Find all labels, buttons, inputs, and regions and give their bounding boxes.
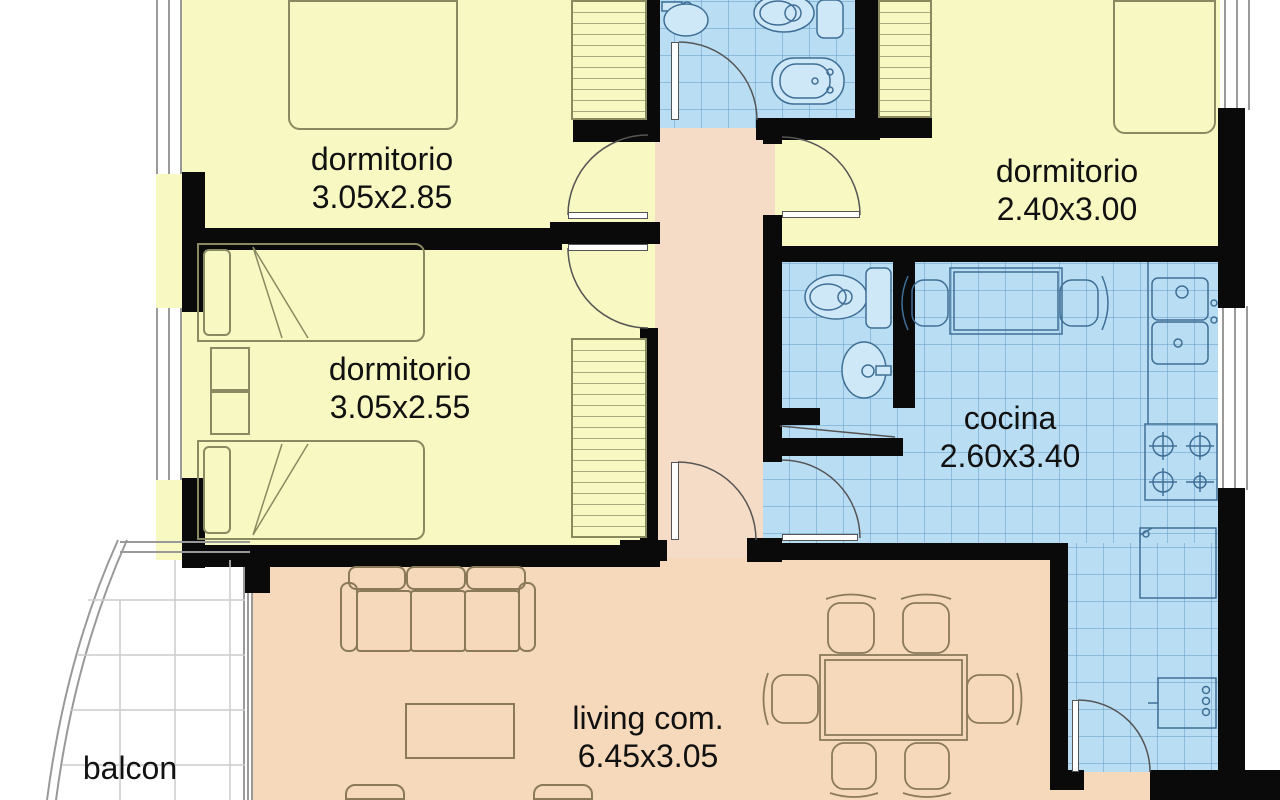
nightstand-icon <box>210 391 250 435</box>
wall-segment <box>1218 488 1245 772</box>
room-dims: 2.60x3.40 <box>940 437 1081 475</box>
wall-segment <box>893 258 915 408</box>
room-name: dormitorio <box>311 140 453 178</box>
wall-segment <box>550 222 660 244</box>
window-living-balcony <box>243 560 253 800</box>
room-label-dormitorio-3: dormitorio 2.40x3.00 <box>996 152 1138 228</box>
window-left-bedroom1 <box>156 0 182 174</box>
door-leaf <box>782 534 858 541</box>
room-label-cocina: cocina 2.60x3.40 <box>940 399 1081 475</box>
sofa-icon <box>340 566 536 652</box>
room-name: living com. <box>572 699 723 737</box>
bed-single-icon <box>1113 0 1216 134</box>
wall-segment <box>763 118 782 144</box>
wall-segment <box>1050 770 1084 790</box>
room-name: balcon <box>83 749 177 787</box>
bed-single-icon <box>197 440 425 540</box>
wall-segment <box>245 545 270 593</box>
floor-plan: dormitorio 3.05x2.85 dormitorio 3.05x2.5… <box>0 0 1280 800</box>
room-name: cocina <box>940 399 1081 437</box>
window-left-bedroom2 <box>156 308 182 480</box>
bed-pillow-icon <box>203 446 231 534</box>
room-label-living: living com. 6.45x3.05 <box>572 699 723 775</box>
door-leaf <box>1072 700 1079 772</box>
wall-segment <box>1050 543 1068 773</box>
wall-segment <box>620 540 667 561</box>
wall-segment <box>876 118 932 138</box>
door-leaf <box>671 42 679 120</box>
nightstand-icon <box>210 347 250 391</box>
room-dims: 6.45x3.05 <box>572 737 723 775</box>
bed-pillow-icon <box>203 249 231 336</box>
coffee-table-icon <box>405 703 515 759</box>
bed-double-icon <box>288 0 458 130</box>
room-dims: 3.05x2.55 <box>329 388 471 426</box>
room-dims: 3.05x2.85 <box>311 178 453 216</box>
room-bathroom-floor <box>648 0 860 136</box>
armchair-icon <box>533 784 593 800</box>
door-leaf <box>568 244 648 251</box>
window-right-kitchen <box>1222 306 1248 490</box>
armchair-icon <box>345 784 405 800</box>
wardrobe-icon <box>571 0 647 120</box>
room-name: dormitorio <box>996 152 1138 190</box>
room-label-dormitorio-1: dormitorio 3.05x2.85 <box>311 140 453 216</box>
kitchen-door-opening <box>1084 772 1150 790</box>
bed-single-icon <box>197 243 425 342</box>
wall-segment <box>573 120 660 142</box>
wall-segment <box>755 543 1055 560</box>
room-name: dormitorio <box>329 350 471 388</box>
door-leaf <box>671 462 679 540</box>
wardrobe-icon <box>878 0 932 118</box>
wall-segment <box>763 246 1218 262</box>
room-label-dormitorio-2: dormitorio 3.05x2.55 <box>329 350 471 426</box>
room-dims: 2.40x3.00 <box>996 190 1138 228</box>
wall-segment <box>1150 770 1280 800</box>
wall-segment <box>1218 108 1245 308</box>
wall-segment <box>765 408 820 425</box>
living-floor-bottom-strip <box>1050 790 1150 800</box>
wardrobe-icon <box>571 338 647 538</box>
room-label-balcon: balcon <box>83 749 177 787</box>
window-right-bedroom3 <box>1224 0 1250 110</box>
door-leaf <box>568 212 648 219</box>
wall-segment <box>778 438 903 456</box>
door-leaf <box>782 211 860 218</box>
